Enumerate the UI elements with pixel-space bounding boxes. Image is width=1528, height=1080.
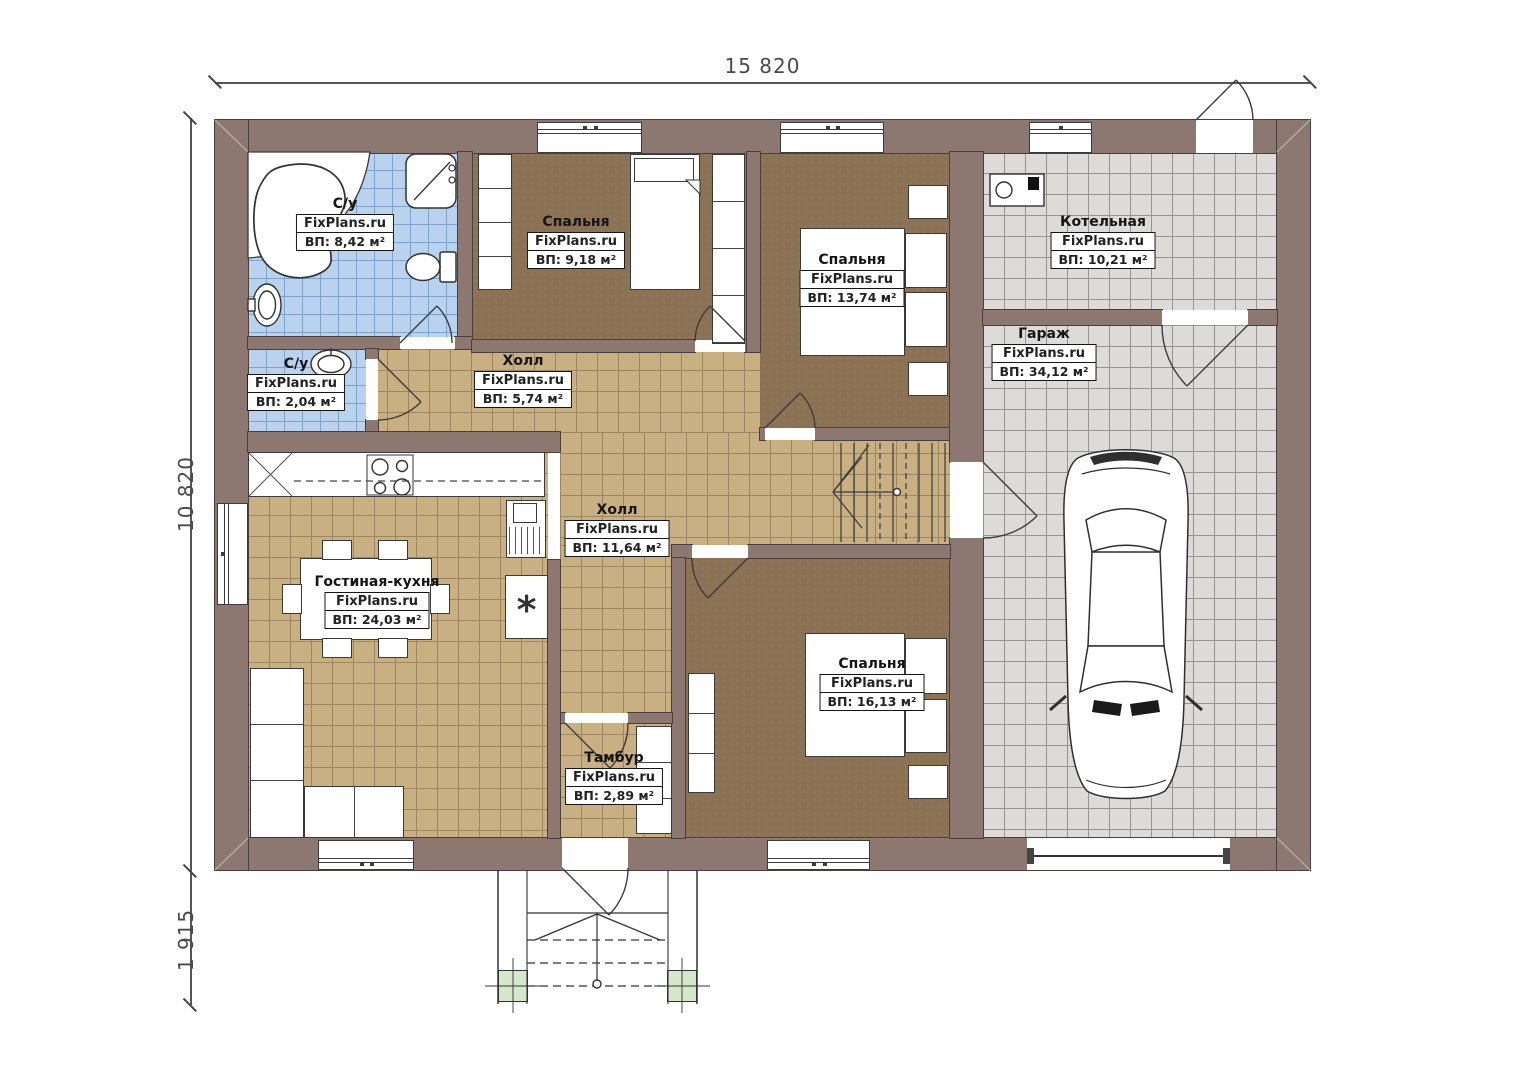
wall [248,432,560,452]
wall [748,545,950,558]
watermark: FixPlans.ru [475,372,571,390]
window [537,122,642,153]
door-opening [692,545,748,558]
dimension-top-label: 15 820 [215,54,1310,78]
door-opening [1162,310,1248,325]
door-opening [765,428,815,440]
room-label: Спальня FixPlans.ru ВП: 13,74 м² [800,252,905,307]
room-area: ВП: 13,74 м² [801,289,904,306]
kitchen-counter [248,452,545,497]
room-name: Котельная [1060,214,1146,230]
chair [378,540,408,560]
wall [548,560,560,838]
room-area: ВП: 10,21 м² [1052,251,1155,268]
wardrobe [478,154,512,290]
door-opening-exterior [1196,120,1253,153]
kitchen-unit [506,500,546,558]
wall-boiler-garage [1248,310,1277,325]
room-label: Холл FixPlans.ru ВП: 11,64 м² [565,502,670,557]
watermark: FixPlans.ru [821,675,924,693]
chair [322,540,352,560]
room-name: Гараж [1018,326,1070,342]
wall [815,428,950,440]
room-label: Холл FixPlans.ru ВП: 5,74 м² [474,353,572,408]
wall [458,152,472,337]
watermark: FixPlans.ru [248,375,344,393]
watermark: FixPlans.ru [993,345,1096,363]
room-label: С/у FixPlans.ru ВП: 8,42 м² [296,196,394,251]
dimension-line-top [215,82,1310,84]
room-name: Холл [503,353,544,369]
door-opening [366,359,378,420]
closet [688,673,715,793]
watermark: FixPlans.ru [801,271,904,289]
window [217,503,248,605]
pillow [905,233,947,288]
sofa [250,668,304,838]
wall [366,349,378,359]
pillow [634,158,694,182]
wall-exterior-left [215,120,248,870]
wall [472,340,695,352]
wall [672,558,685,838]
watermark: FixPlans.ru [1052,233,1155,251]
porch-column [667,970,697,1002]
nightstand [908,185,948,219]
window [767,840,870,870]
room-label: Тамбур FixPlans.ru ВП: 2,89 м² [565,750,663,805]
floor-plan: 15 820 10 820 1 915 [0,0,1528,1080]
room-name: С/у [333,196,358,212]
watermark: FixPlans.ru [326,593,429,611]
room-label: Котельная FixPlans.ru ВП: 10,21 м² [1051,214,1156,269]
garage-door-opening [1027,838,1230,870]
dimension-bottomleft-label: 1 915 [174,880,198,1000]
chair [322,638,352,658]
watermark: FixPlans.ru [566,521,669,539]
nightstand [908,362,948,396]
room-area: ВП: 9,18 м² [528,251,624,268]
room-area: ВП: 11,64 м² [566,539,669,556]
wall [455,337,472,349]
chair [378,638,408,658]
room-area: ВП: 5,74 м² [475,390,571,407]
room-label: Гараж FixPlans.ru ВП: 34,12 м² [992,326,1097,381]
room-area: ВП: 2,04 м² [248,393,344,410]
room-label: Гостиная-кухня FixPlans.ru ВП: 24,03 м² [314,574,439,629]
room-name: Холл [597,502,638,518]
wall [628,713,672,723]
pillow [905,292,947,347]
room-area: ВП: 8,42 м² [297,233,393,250]
room-name: Спальня [838,656,905,672]
wall [672,545,692,558]
porch-column [498,970,528,1002]
door-opening [565,713,628,723]
room-name: Спальня [818,252,885,268]
room-label: Спальня FixPlans.ru ВП: 9,18 м² [527,214,625,269]
room-area: ВП: 2,89 м² [566,787,662,804]
room-name: Тамбур [584,750,643,766]
watermark: FixPlans.ru [297,215,393,233]
wall-garage-separation [950,538,983,838]
door-opening [950,462,983,538]
nightstand [908,765,948,799]
wardrobe [712,154,745,344]
wall [366,420,378,432]
door-opening-entrance [562,838,628,870]
watermark: FixPlans.ru [528,233,624,251]
door-opening [400,337,455,349]
room-area: ВП: 24,03 м² [326,611,429,628]
chair [282,584,302,614]
window [1029,122,1092,153]
window [780,122,884,153]
radiator-hatch [509,527,542,554]
room-name: Спальня [542,214,609,230]
watermark: FixPlans.ru [566,769,662,787]
room-area: ВП: 16,13 м² [821,693,924,710]
dimension-left-label: 10 820 [174,434,198,554]
wall [747,152,760,352]
room-label: Спальня FixPlans.ru ВП: 16,13 м² [820,656,925,711]
window [318,840,414,870]
room-name: Гостиная-кухня [314,574,439,590]
wall-exterior-top [215,120,1310,153]
wall [248,337,400,349]
kitchen-unit-top [513,503,537,523]
garage-floor [983,325,1277,838]
wall-garage-separation [950,152,983,462]
room-area: ВП: 34,12 м² [993,363,1096,380]
fridge-snowflake-icon: * [505,578,548,642]
sofa-section [304,786,404,838]
wall-boiler-garage [983,310,1162,325]
room-label: С/у FixPlans.ru ВП: 2,04 м² [247,356,345,411]
wall-exterior-right [1277,120,1310,870]
bed-single [630,154,700,290]
room-name: С/у [284,356,309,372]
